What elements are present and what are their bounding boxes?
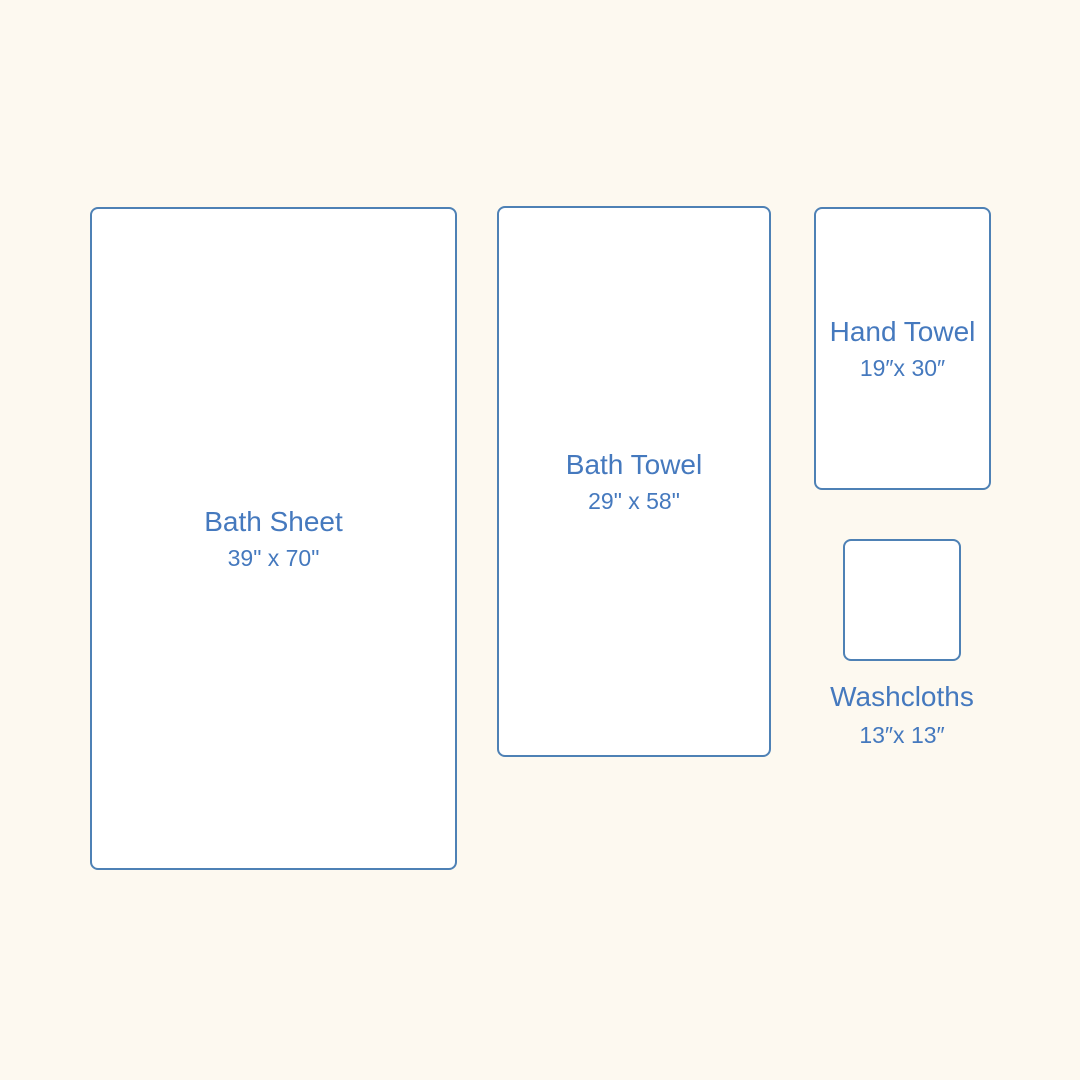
bath-sheet-box: Bath Sheet 39" x 70" [90, 207, 457, 870]
bath-towel-dimensions: 29" x 58" [588, 490, 680, 513]
washcloth-label: Washcloths 13″x 13″ [812, 683, 992, 747]
hand-towel-name: Hand Towel [830, 318, 976, 346]
hand-towel-dimensions: 19″x 30″ [860, 357, 945, 380]
washcloth-box [843, 539, 961, 661]
bath-towel-name: Bath Towel [566, 451, 702, 479]
hand-towel-box: Hand Towel 19″x 30″ [814, 207, 991, 490]
washcloth-dimensions: 13″x 13″ [859, 724, 944, 747]
bath-towel-box: Bath Towel 29" x 58" [497, 206, 771, 757]
bath-sheet-name: Bath Sheet [204, 508, 343, 536]
towel-size-chart: Bath Sheet 39" x 70" Bath Towel 29" x 58… [0, 0, 1080, 1080]
washcloth-name: Washcloths [830, 683, 974, 711]
bath-sheet-dimensions: 39" x 70" [228, 547, 320, 570]
